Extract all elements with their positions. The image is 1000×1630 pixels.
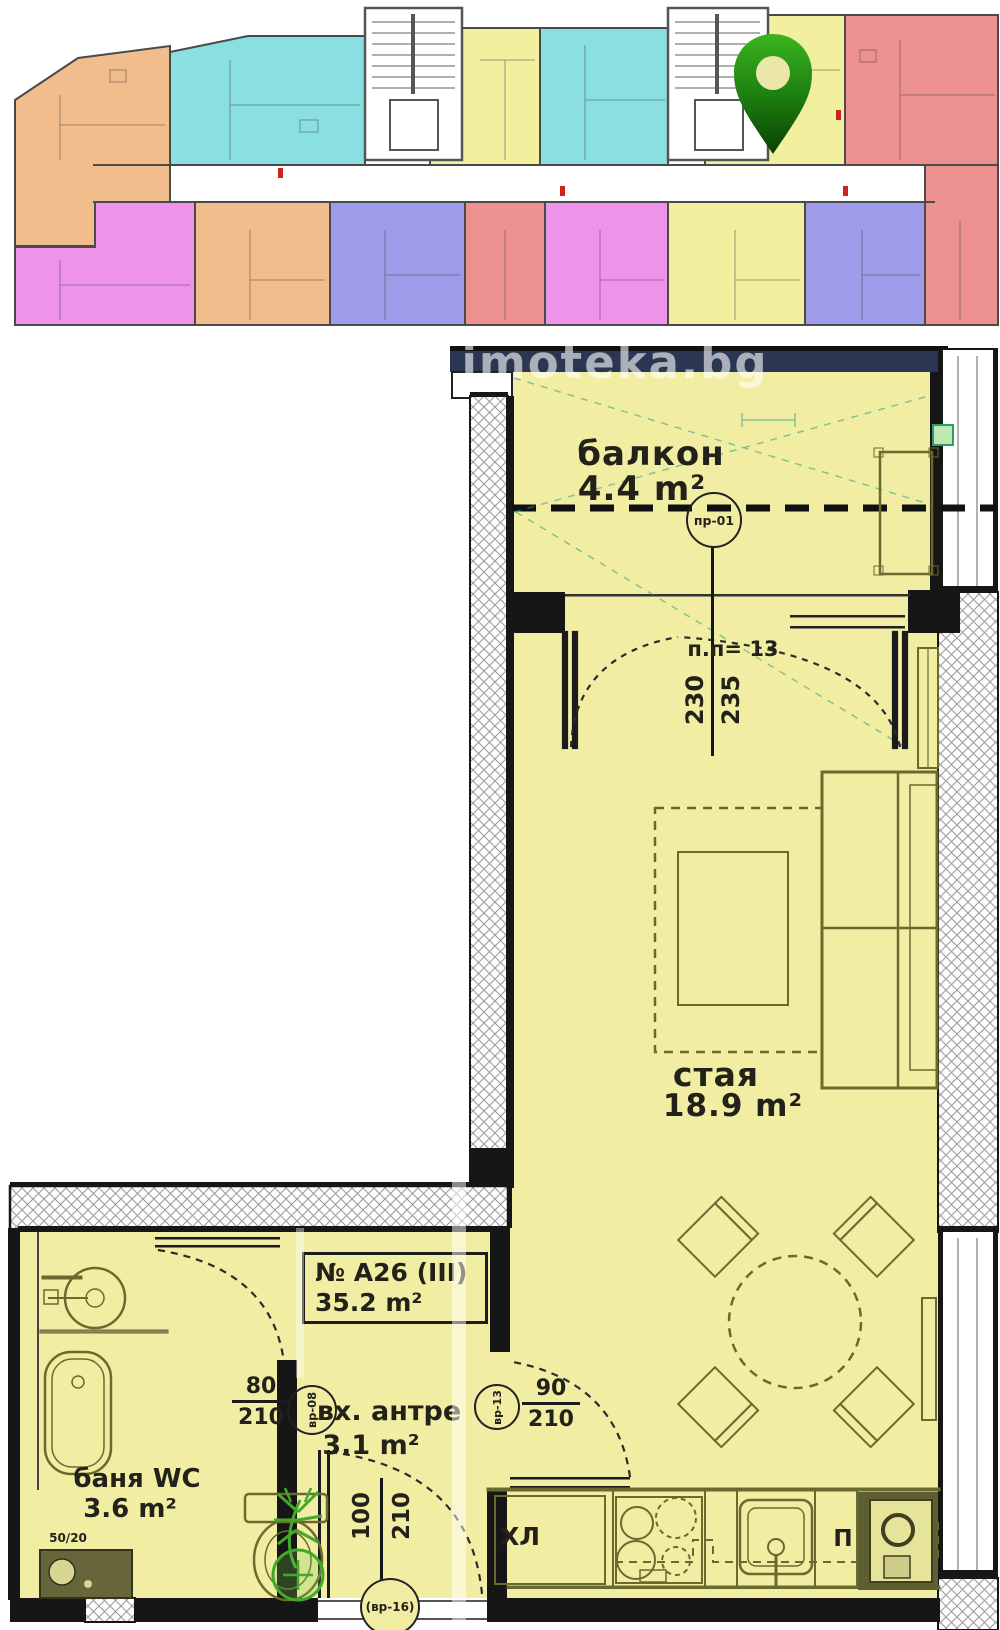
apartment-plan — [8, 346, 998, 1630]
balcony-dim-height: 235 — [719, 670, 743, 730]
room-door-dims: 90 210 — [522, 1376, 580, 1432]
watermark: imoteka.bg — [455, 336, 775, 389]
bathroom-cabinet — [40, 1550, 132, 1598]
stairwell-left — [365, 8, 462, 160]
balcony-dim-width: 230 — [683, 670, 707, 730]
building-overview — [15, 15, 998, 325]
fridge-label: ХЛ — [494, 1524, 546, 1550]
entry-door-tag: (вр-16) — [360, 1578, 420, 1630]
room-note: п.п= 13 — [648, 638, 818, 660]
scan-artifact — [296, 1228, 304, 1378]
room-door-tag: вр-13 — [474, 1384, 520, 1430]
balcony-label: балкон — [556, 437, 746, 473]
washing-machine — [858, 1492, 938, 1590]
scan-artifact — [452, 1150, 466, 1628]
entry-door-height: 210 — [390, 1486, 414, 1546]
apartment-area: 35.2 m² — [315, 1288, 475, 1318]
pantry-label: П — [828, 1527, 858, 1551]
entry-door-width: 100 — [350, 1486, 374, 1546]
bathroom-door-tag: вр-08 — [287, 1385, 337, 1435]
bathroom-vent-label: 50/20 — [40, 1532, 96, 1545]
entry-hall-label: вх. антре — [316, 1398, 462, 1426]
apartment-number: № А26 (III) — [315, 1258, 475, 1288]
entry-hall-area: 3.1 m² — [308, 1432, 434, 1460]
balcony-window-tag: пр-01 — [686, 492, 742, 548]
bathroom-label: баня WC — [72, 1466, 202, 1493]
room-area: 18.9 m² — [658, 1090, 808, 1123]
floor-plan-page: imoteka.bg балкон 4.4 m² пр-01 230 235 п… — [0, 0, 1000, 1630]
bathroom-area: 3.6 m² — [68, 1496, 192, 1523]
bathroom-door-dims: 80 210 — [232, 1374, 290, 1430]
